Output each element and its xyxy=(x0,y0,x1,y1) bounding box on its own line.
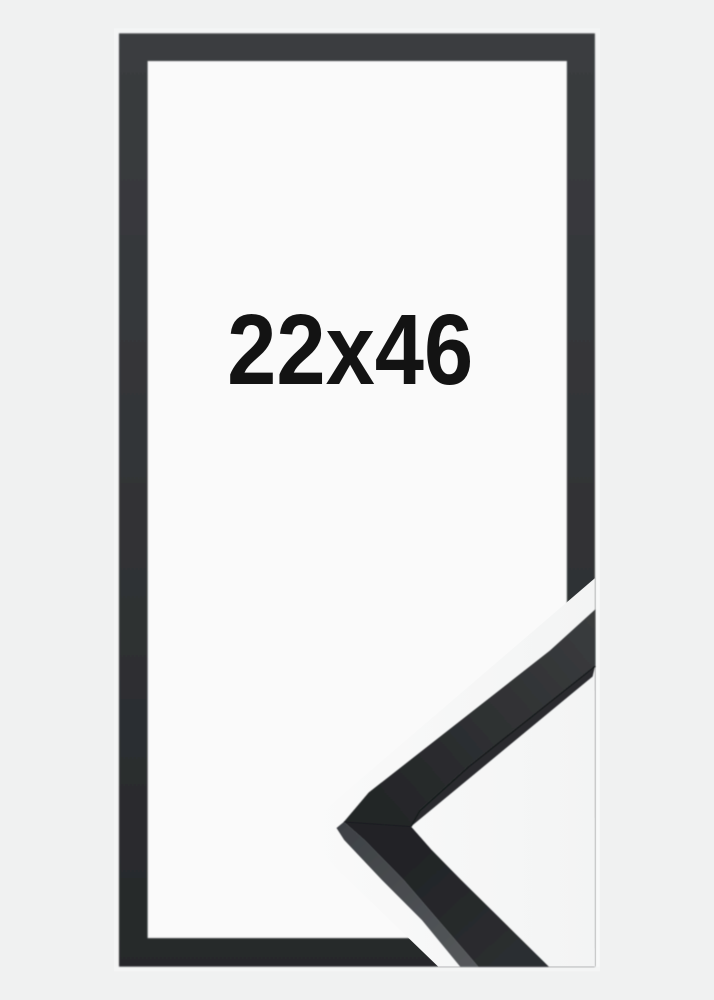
svg-text:22x46: 22x46 xyxy=(227,295,473,406)
